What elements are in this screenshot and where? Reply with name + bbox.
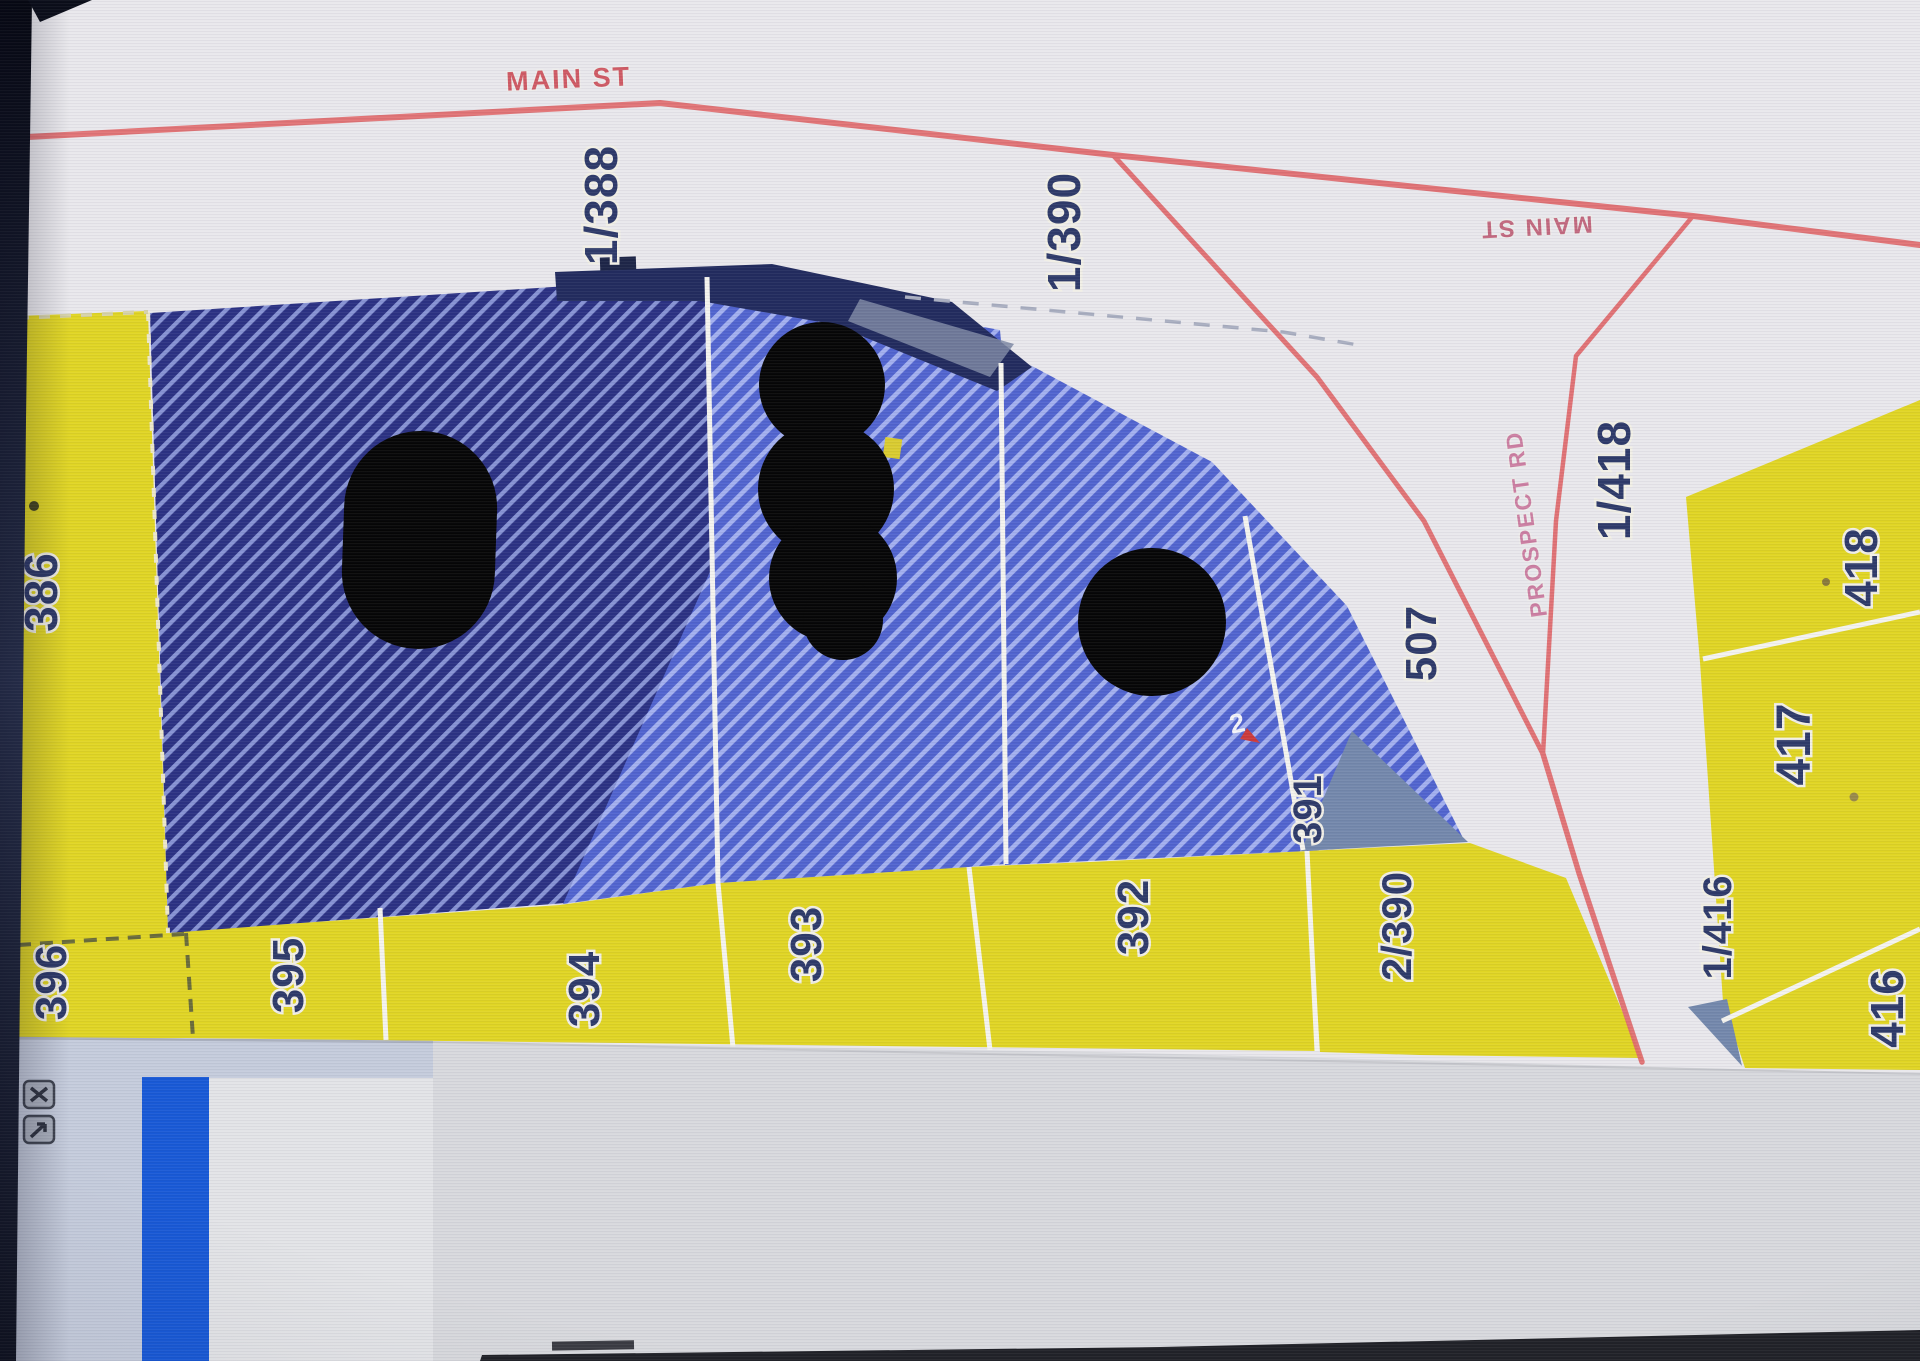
survey-mark-yellow bbox=[883, 437, 903, 459]
label-396: 396 bbox=[27, 944, 76, 1020]
label-1-388: 1/388 bbox=[575, 145, 627, 265]
scrollbar-thumb[interactable] bbox=[142, 1077, 209, 1361]
gis-map-screen: 2 1/388 1/390 386 396 395 394 393 392 bbox=[0, 0, 1920, 1361]
label-392: 392 bbox=[1109, 879, 1158, 955]
redaction-circle bbox=[1078, 548, 1226, 696]
bezel-mark bbox=[552, 1340, 634, 1350]
survey-dot-417 bbox=[1850, 793, 1859, 802]
panel-white-area bbox=[209, 1078, 433, 1361]
label-416: 416 bbox=[1861, 968, 1913, 1048]
label-1-418: 1/418 bbox=[1588, 420, 1640, 540]
redaction-pill bbox=[339, 428, 500, 651]
label-395: 395 bbox=[264, 937, 313, 1013]
label-main-st-top: MAIN ST bbox=[506, 61, 632, 96]
label-417: 417 bbox=[1768, 702, 1821, 785]
label-2-390: 2/390 bbox=[1373, 871, 1420, 981]
label-507: 507 bbox=[1397, 605, 1446, 681]
parcel-map-canvas: 2 1/388 1/390 386 396 395 394 393 392 bbox=[0, 0, 1920, 1361]
label-1-416: 1/416 bbox=[1696, 874, 1740, 979]
survey-dot-386 bbox=[29, 501, 39, 511]
overlay-close-icon[interactable] bbox=[24, 1081, 54, 1108]
redaction-stack bbox=[758, 322, 897, 660]
label-393: 393 bbox=[782, 906, 831, 982]
label-418: 418 bbox=[1835, 527, 1887, 607]
overlay-export-icon[interactable] bbox=[24, 1116, 54, 1143]
label-391: 391 bbox=[1286, 774, 1330, 844]
label-394: 394 bbox=[560, 951, 609, 1027]
survey-dot-418 bbox=[1822, 578, 1830, 586]
label-1-390: 1/390 bbox=[1038, 172, 1090, 292]
